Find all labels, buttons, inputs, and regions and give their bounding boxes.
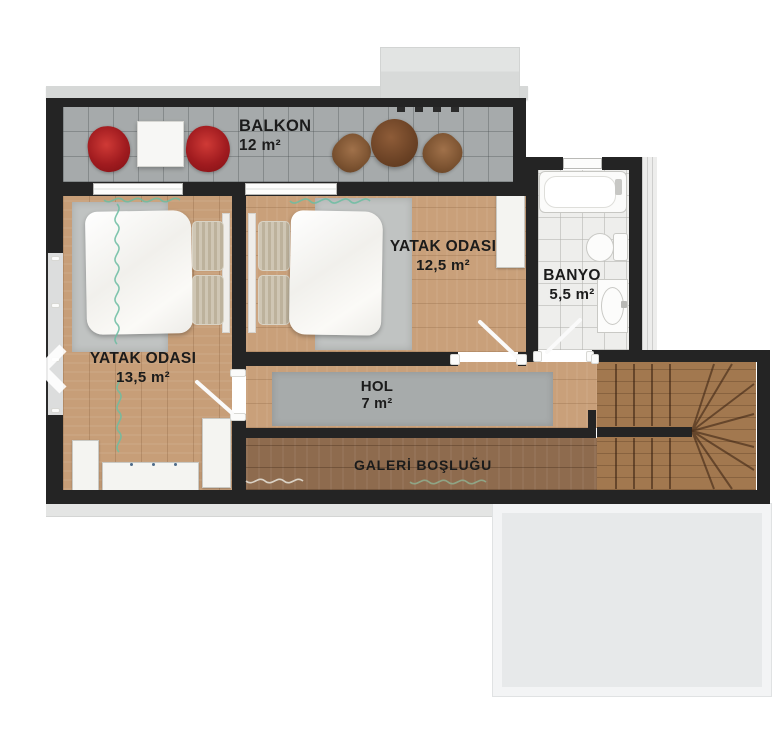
wall-bath-left [526,157,538,362]
bed-left-pillow-2 [192,275,224,325]
dresser-knob-1 [130,463,133,466]
room-area: 12,5 m² [384,257,502,275]
jamb-bedroom-mid-door-left [450,354,460,365]
stair-mid-divider [597,427,692,437]
wall-bottom-left [46,490,237,504]
bed-left-pillow-1 [192,221,224,271]
wall-stairs-top [592,350,770,362]
jamb-bath-door-left [533,351,542,362]
floor-plan: BALKON 12 m² YATAK ODASI 12,5 m² BANYO 5… [0,0,778,738]
wall-balcony-top [46,98,513,107]
label-bedroom-left: YATAK ODASI 13,5 m² [84,350,202,387]
sink-faucet [621,301,627,308]
bed-mid-pillow-2 [258,275,290,325]
room-area: 7 m² [327,396,427,413]
room-area: 13,5 m² [84,369,202,387]
wardrobe-left-1 [72,440,99,492]
balcony-round-table [371,119,418,167]
toilet-bowl [586,233,614,262]
stairs-floor [597,362,756,490]
wall-hall-gallery-divider [246,428,592,438]
wall-stairs-right [757,350,770,504]
lower-roof-surface [502,513,762,687]
room-name: YATAK ODASI [84,350,202,369]
window-left-mullion-1 [51,256,60,261]
wall-divider-lower [232,414,246,490]
dresser-knob-3 [174,463,177,466]
siding-bottom [46,504,492,517]
wardrobe-left-2 [202,418,231,488]
room-name: BANYO [523,267,621,286]
bed-mid [289,210,383,336]
label-hol: HOL 7 m² [327,378,427,413]
jamb-bedroom-left-door-bottom [230,413,246,421]
toilet-tank [613,233,628,261]
bed-left [85,210,193,335]
dresser-knob-2 [152,463,155,466]
jamb-stairs-entry [591,354,599,364]
label-galeri: GALERİ BOŞLUĞU [342,457,504,474]
bathtub-inner [544,176,616,208]
room-area: 5,5 m² [523,286,621,304]
siding-right [642,157,657,350]
jamb-bedroom-mid-door-right [516,354,527,365]
window-left-mullion-2 [51,303,60,308]
bathtub-faucet [615,179,622,195]
room-name: YATAK ODASI [384,238,502,257]
stair-newel-post [588,410,596,438]
room-name: HOL [327,378,427,396]
wall-bedroom-hall-left [246,352,458,366]
balcony-sliding-door-2 [245,183,337,195]
wall-divider-upper [232,196,246,376]
bed-mid-headboard [248,213,256,333]
roof-top-block [380,47,520,100]
room-area: 12 m² [239,137,359,156]
label-banyo: BANYO 5,5 m² [523,267,621,304]
label-balkon: BALKON 12 m² [239,117,359,155]
bed-mid-pillow-1 [258,221,290,271]
balcony-sliding-door-1 [93,183,183,195]
room-name: BALKON [239,117,359,137]
window-bathroom [563,158,602,169]
wall-bath-right [629,157,642,362]
balcony-side-table [137,121,184,167]
window-left-mullion-4 [51,408,60,413]
wall-bath-top-left [526,157,563,170]
wall-bottom-right [237,490,770,504]
room-name: GALERİ BOŞLUĞU [342,457,504,474]
label-bedroom-mid: YATAK ODASI 12,5 m² [384,238,502,275]
jamb-bedroom-left-door-top [230,369,246,377]
